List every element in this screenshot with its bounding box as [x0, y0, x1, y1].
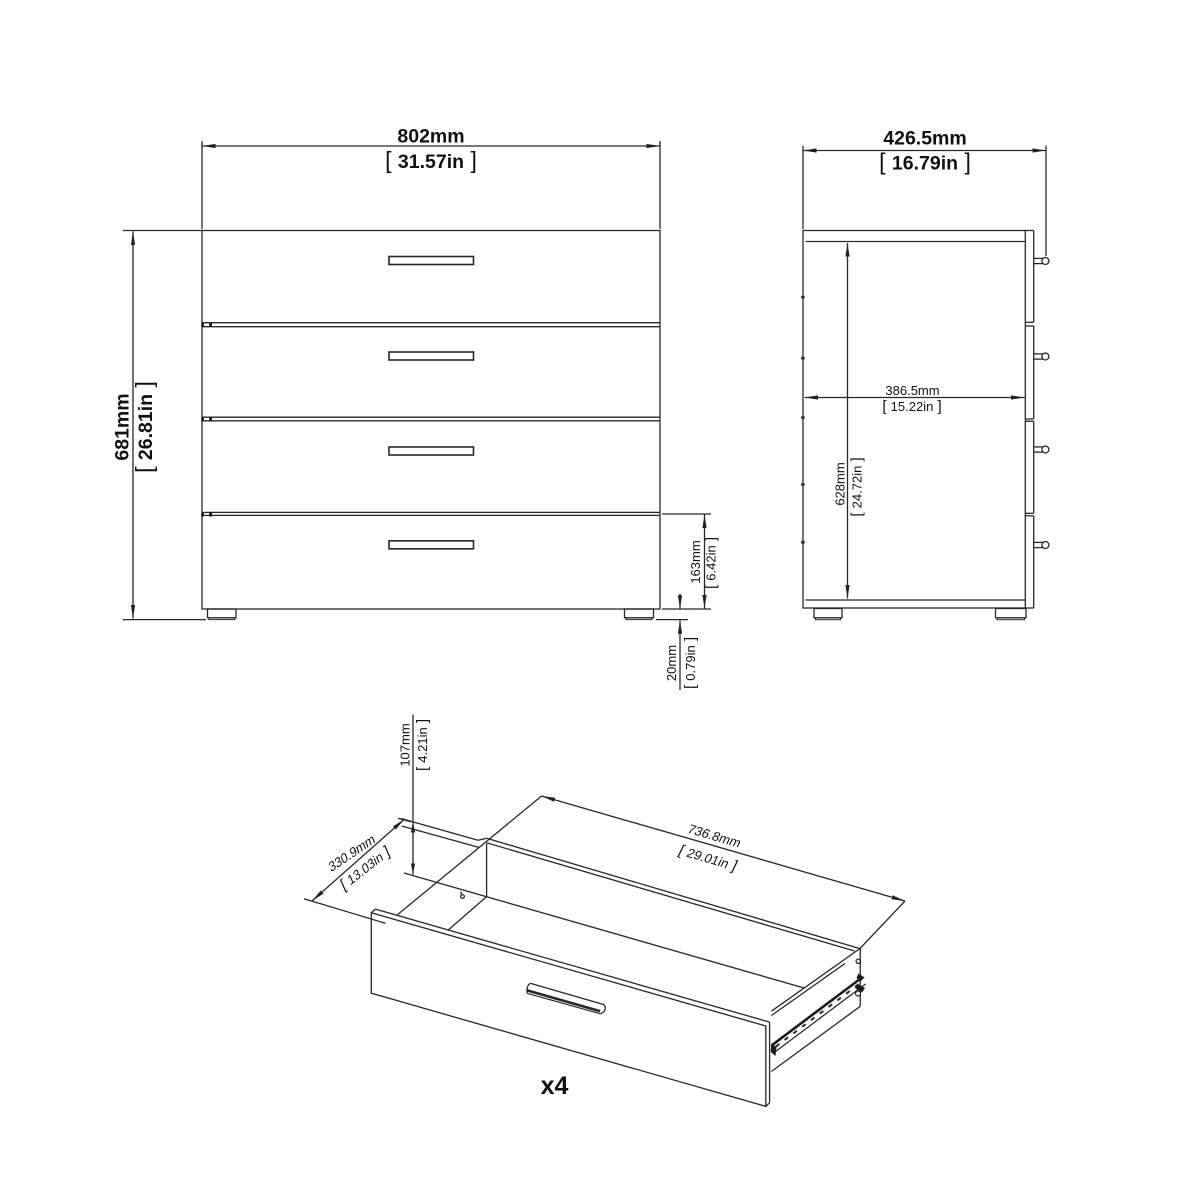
svg-text:[ 4.21in ]: [ 4.21in ]	[414, 719, 431, 771]
svg-text:[ 0.79in ]: [ 0.79in ]	[682, 637, 699, 689]
svg-text:[ 16.79in ]: [ 16.79in ]	[879, 149, 971, 175]
svg-text:[ 6.42in ]: [ 6.42in ]	[703, 537, 720, 589]
svg-text:[ 26.81in ]: [ 26.81in ]	[131, 381, 157, 473]
svg-text:386.5mm: 386.5mm	[885, 383, 939, 398]
svg-text:163mm: 163mm	[688, 540, 703, 583]
svg-text:20mm: 20mm	[664, 645, 679, 681]
svg-text:802mm: 802mm	[397, 126, 464, 148]
svg-text:426.5mm: 426.5mm	[883, 128, 966, 150]
svg-text:x4: x4	[541, 1072, 569, 1100]
svg-text:[ 24.72in ]: [ 24.72in ]	[849, 457, 866, 516]
svg-text:[ 31.57in ]: [ 31.57in ]	[385, 147, 477, 173]
svg-text:628mm: 628mm	[833, 462, 848, 505]
svg-text:107mm: 107mm	[398, 723, 413, 766]
svg-text:[ 15.22in ]: [ 15.22in ]	[882, 398, 941, 415]
svg-text:681mm: 681mm	[112, 393, 134, 460]
